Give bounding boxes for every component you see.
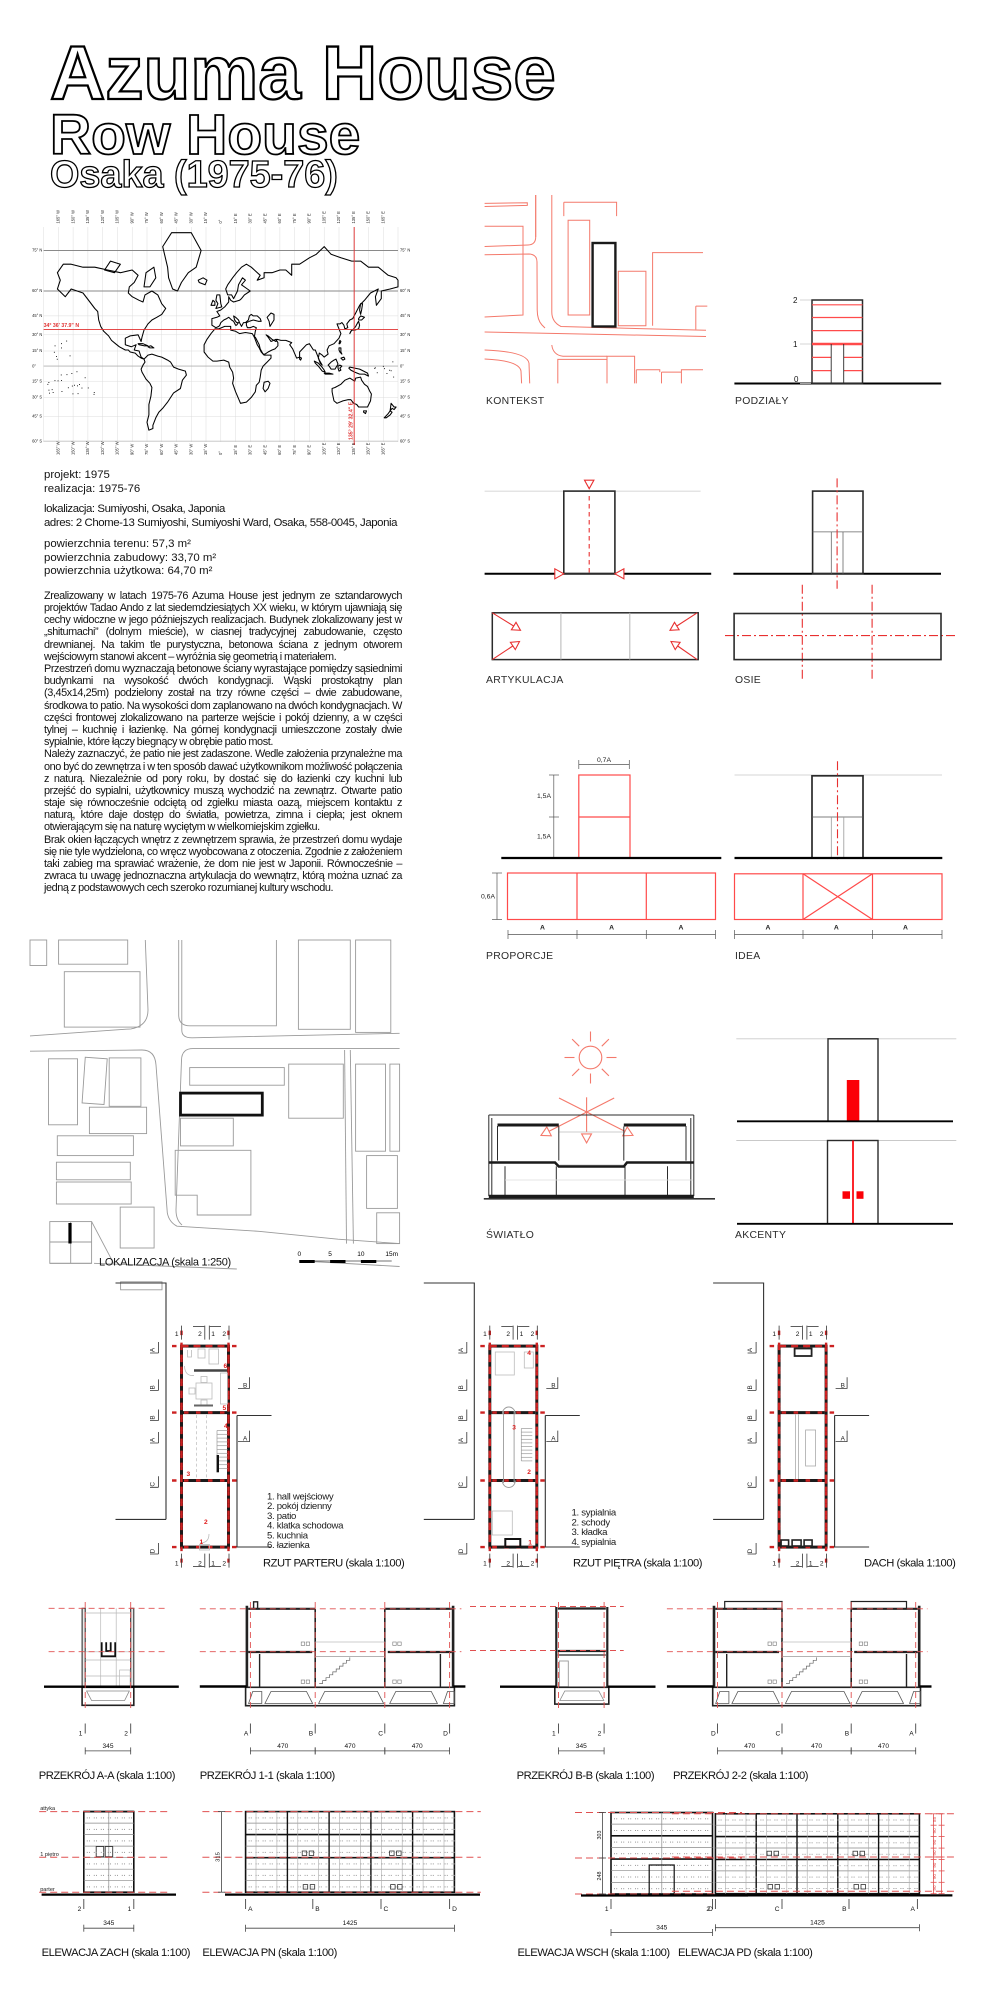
svg-text:2: 2 (222, 1331, 226, 1338)
svg-text:1: 1 (483, 1331, 487, 1338)
svg-text:165° W: 165° W (56, 441, 61, 455)
svg-text:A: A (609, 925, 614, 932)
svg-text:90: 90 (932, 1828, 937, 1834)
svg-text:135° W: 135° W (85, 441, 90, 455)
svg-text:345: 345 (102, 1743, 113, 1750)
svg-text:45° N: 45° N (400, 313, 410, 318)
svg-text:0,7A: 0,7A (597, 757, 611, 764)
svg-text:120° W: 120° W (100, 210, 105, 224)
svg-text:75° W: 75° W (144, 212, 149, 223)
svg-text:90: 90 (932, 1874, 937, 1880)
svg-text:1: 1 (175, 1331, 179, 1338)
svg-text:A: A (910, 1906, 915, 1913)
svg-text:60° E: 60° E (277, 445, 282, 455)
svg-text:B: B (747, 1415, 754, 1419)
svg-text:60° W: 60° W (159, 212, 164, 223)
svg-text:30° N: 30° N (400, 332, 410, 337)
svg-text:345: 345 (576, 1743, 587, 1750)
svg-text:60° N: 60° N (32, 288, 42, 293)
svg-text:1: 1 (528, 1540, 532, 1547)
svg-text:1: 1 (605, 1906, 609, 1913)
svg-text:10: 10 (357, 1251, 365, 1258)
svg-text:315: 315 (216, 1852, 222, 1862)
svg-text:RZUT PARTERU (skala 1:100): RZUT PARTERU (skala 1:100) (263, 1558, 405, 1570)
svg-text:0°: 0° (218, 219, 223, 223)
svg-text:PRZEKRÓJ B-B (skala 1:100): PRZEKRÓJ B-B (skala 1:100) (517, 1769, 655, 1782)
svg-text:30° W: 30° W (189, 444, 194, 455)
svg-text:75° N: 75° N (400, 248, 410, 253)
svg-text:470: 470 (744, 1743, 755, 1750)
svg-text:PRZEKRÓJ A-A (skala 1:100): PRZEKRÓJ A-A (skala 1:100) (39, 1769, 176, 1782)
svg-text:2: 2 (198, 1331, 202, 1338)
svg-text:30° E: 30° E (248, 213, 253, 223)
svg-text:105° W: 105° W (115, 441, 120, 455)
svg-text:3: 3 (512, 1425, 516, 1432)
svg-text:DACH (skala 1:100): DACH (skala 1:100) (864, 1558, 956, 1570)
svg-text:150° W: 150° W (70, 210, 75, 224)
svg-text:45° E: 45° E (262, 445, 267, 455)
svg-text:150° E: 150° E (366, 211, 371, 224)
svg-text:2: 2 (506, 1561, 510, 1568)
svg-text:1: 1 (211, 1561, 215, 1568)
svg-text:2: 2 (598, 1731, 602, 1738)
svg-text:B: B (315, 1906, 320, 1913)
svg-text:60° S: 60° S (32, 438, 42, 443)
svg-text:1: 1 (793, 340, 798, 349)
svg-text:150° E: 150° E (366, 442, 371, 455)
svg-text:135° E: 135° E (351, 211, 356, 224)
svg-text:A: A (747, 1347, 754, 1352)
svg-text:A: A (766, 925, 771, 932)
svg-text:105° W: 105° W (115, 210, 120, 224)
svg-text:470: 470 (878, 1743, 889, 1750)
svg-text:2: 2 (204, 1519, 208, 1526)
svg-text:2: 2 (820, 1331, 824, 1338)
svg-text:B: B (309, 1731, 314, 1738)
svg-text:A: A (747, 1437, 754, 1442)
svg-text:15° N: 15° N (32, 348, 42, 353)
svg-text:C: C (384, 1906, 389, 1913)
svg-text:135° 29' 32.4" E: 135° 29' 32.4" E (349, 401, 355, 440)
svg-text:34° 36' 37.9" N: 34° 36' 37.9" N (44, 323, 80, 329)
svg-text:15° W: 15° W (203, 444, 208, 455)
svg-text:D: D (443, 1731, 448, 1738)
svg-text:1425: 1425 (810, 1920, 825, 1927)
svg-text:2: 2 (531, 1561, 535, 1568)
svg-text:15° W: 15° W (203, 212, 208, 223)
svg-text:45° S: 45° S (400, 414, 410, 419)
svg-text:ELEWACJA PN (skala 1:100): ELEWACJA PN (skala 1:100) (202, 1947, 337, 1959)
svg-text:C: C (775, 1906, 780, 1913)
svg-text:6: 6 (224, 1363, 228, 1370)
svg-text:135° W: 135° W (85, 210, 90, 224)
svg-text:15° S: 15° S (32, 378, 42, 383)
svg-text:1425: 1425 (343, 1920, 358, 1927)
svg-text:1,5A: 1,5A (537, 834, 551, 841)
svg-text:4: 4 (224, 1423, 228, 1430)
svg-text:0°: 0° (218, 451, 223, 455)
svg-text:B: B (150, 1385, 157, 1389)
svg-text:120° E: 120° E (336, 442, 341, 455)
svg-text:B: B (150, 1415, 157, 1419)
svg-text:1: 1 (809, 1561, 813, 1568)
svg-text:0: 0 (794, 375, 799, 384)
svg-text:30° N: 30° N (32, 332, 42, 337)
svg-text:75° E: 75° E (292, 213, 297, 223)
svg-text:A: A (903, 925, 908, 932)
svg-text:165° W: 165° W (56, 210, 61, 224)
svg-text:1: 1 (483, 1561, 487, 1568)
svg-text:2: 2 (78, 1906, 82, 1913)
svg-text:A: A (150, 1347, 157, 1352)
svg-text:1 piętro: 1 piętro (40, 1852, 59, 1858)
svg-text:0,6A: 0,6A (481, 894, 495, 901)
svg-text:1: 1 (520, 1331, 524, 1338)
svg-text:60° S: 60° S (400, 438, 410, 443)
svg-text:1: 1 (200, 1539, 204, 1546)
svg-text:75° N: 75° N (32, 248, 42, 253)
svg-text:PRZEKRÓJ 2-2 (skala 1:100): PRZEKRÓJ 2-2 (skala 1:100) (673, 1769, 809, 1782)
svg-text:ELEWACJA PD (skala 1:100): ELEWACJA PD (skala 1:100) (678, 1947, 813, 1959)
svg-text:15° E: 15° E (233, 213, 238, 223)
svg-text:120° W: 120° W (100, 441, 105, 455)
svg-text:30° W: 30° W (189, 212, 194, 223)
svg-text:470: 470 (412, 1743, 423, 1750)
svg-text:A: A (248, 1906, 253, 1913)
svg-text:2: 2 (527, 1469, 531, 1476)
svg-text:135° E: 135° E (351, 442, 356, 455)
svg-text:1: 1 (809, 1331, 813, 1338)
svg-text:A: A (458, 1437, 465, 1442)
svg-text:5: 5 (328, 1251, 332, 1258)
svg-text:D: D (452, 1906, 457, 1913)
svg-text:B: B (842, 1906, 847, 1913)
svg-text:55: 55 (932, 1817, 937, 1823)
svg-text:75° E: 75° E (292, 445, 297, 455)
svg-text:B: B (458, 1385, 465, 1389)
svg-text:C: C (150, 1482, 157, 1487)
svg-text:345: 345 (656, 1925, 667, 1932)
svg-text:C: C (378, 1731, 383, 1738)
svg-text:attyka: attyka (40, 1806, 56, 1812)
svg-text:parter: parter (40, 1887, 55, 1893)
svg-text:303: 303 (597, 1831, 603, 1840)
svg-text:470: 470 (277, 1743, 288, 1750)
svg-text:90° W: 90° W (129, 212, 134, 223)
svg-text:90: 90 (932, 1839, 937, 1845)
svg-text:45° N: 45° N (32, 313, 42, 318)
svg-text:D: D (150, 1548, 157, 1553)
svg-text:A: A (678, 925, 683, 932)
svg-text:1: 1 (772, 1331, 776, 1338)
svg-text:75° W: 75° W (144, 444, 149, 455)
svg-text:90° W: 90° W (129, 444, 134, 455)
svg-text:A: A (834, 925, 839, 932)
svg-text:345: 345 (103, 1920, 114, 1927)
svg-text:A: A (244, 1731, 249, 1738)
svg-text:5: 5 (223, 1405, 227, 1412)
svg-text:C: C (776, 1731, 781, 1738)
svg-text:2: 2 (796, 1561, 800, 1568)
svg-text:1: 1 (79, 1731, 83, 1738)
svg-text:470: 470 (811, 1743, 822, 1750)
svg-text:A: A (150, 1437, 157, 1442)
svg-text:PRZEKRÓJ 1-1 (skala 1:100): PRZEKRÓJ 1-1 (skala 1:100) (200, 1769, 336, 1782)
svg-text:D: D (747, 1548, 754, 1553)
svg-text:C: C (458, 1482, 465, 1487)
svg-text:1: 1 (552, 1731, 556, 1738)
svg-text:RZUT PIĘTRA (skala 1:100): RZUT PIĘTRA (skala 1:100) (573, 1558, 703, 1570)
svg-text:4. sypialnia: 4. sypialnia (572, 1537, 617, 1548)
svg-text:6. łazienka: 6. łazienka (267, 1540, 311, 1551)
svg-text:120° E: 120° E (336, 211, 341, 224)
svg-text:A: A (540, 925, 545, 932)
svg-text:ELEWACJA ZACH (skala 1:100): ELEWACJA ZACH (skala 1:100) (42, 1947, 191, 1959)
svg-text:165° E: 165° E (381, 442, 386, 455)
svg-text:2: 2 (531, 1331, 535, 1338)
svg-text:90° E: 90° E (307, 213, 312, 223)
svg-text:1: 1 (520, 1561, 524, 1568)
svg-text:0°: 0° (400, 363, 404, 368)
svg-text:B: B (747, 1385, 754, 1389)
svg-text:ELEWACJA WSCH (skala 1:100): ELEWACJA WSCH (skala 1:100) (518, 1947, 671, 1959)
svg-text:B: B (458, 1415, 465, 1419)
svg-text:45° E: 45° E (262, 213, 267, 223)
svg-text:D: D (458, 1548, 465, 1553)
svg-text:3: 3 (187, 1471, 191, 1478)
svg-text:0: 0 (297, 1251, 301, 1258)
svg-text:D: D (708, 1906, 713, 1913)
svg-text:150° W: 150° W (70, 441, 75, 455)
svg-text:1,5A: 1,5A (537, 793, 551, 800)
svg-text:2: 2 (820, 1561, 824, 1568)
svg-text:15° S: 15° S (400, 378, 410, 383)
svg-text:30° S: 30° S (32, 395, 42, 400)
svg-text:165° E: 165° E (381, 211, 386, 224)
svg-text:248: 248 (597, 1872, 603, 1881)
svg-text:60° W: 60° W (159, 444, 164, 455)
svg-text:90: 90 (932, 1862, 937, 1868)
svg-text:15m: 15m (385, 1251, 398, 1258)
svg-text:45° W: 45° W (174, 212, 179, 223)
svg-text:A: A (909, 1731, 914, 1738)
svg-text:30° S: 30° S (400, 395, 410, 400)
svg-text:1: 1 (772, 1561, 776, 1568)
svg-text:2: 2 (506, 1331, 510, 1338)
svg-text:15° E: 15° E (233, 445, 238, 455)
svg-text:105° E: 105° E (321, 211, 326, 224)
svg-text:2: 2 (796, 1331, 800, 1338)
svg-text:D: D (711, 1731, 716, 1738)
svg-text:4: 4 (527, 1350, 531, 1357)
svg-text:30° E: 30° E (248, 445, 253, 455)
svg-text:1: 1 (128, 1906, 132, 1913)
svg-text:90: 90 (932, 1850, 937, 1856)
svg-text:C: C (747, 1482, 754, 1487)
svg-text:1: 1 (211, 1331, 215, 1338)
svg-text:60° E: 60° E (277, 213, 282, 223)
svg-text:B: B (845, 1731, 850, 1738)
svg-text:2: 2 (198, 1561, 202, 1568)
svg-text:LOKALIZACJA (skala 1:250): LOKALIZACJA (skala 1:250) (99, 1257, 231, 1269)
svg-text:45° S: 45° S (32, 414, 42, 419)
svg-text:60° N: 60° N (400, 288, 410, 293)
svg-text:90° E: 90° E (307, 445, 312, 455)
svg-text:90: 90 (932, 1885, 937, 1891)
svg-text:15° N: 15° N (400, 348, 410, 353)
svg-text:0°: 0° (32, 363, 36, 368)
svg-text:105° E: 105° E (321, 442, 326, 455)
svg-text:2: 2 (124, 1731, 128, 1738)
svg-text:2: 2 (222, 1561, 226, 1568)
svg-text:45° W: 45° W (174, 444, 179, 455)
svg-text:A: A (458, 1347, 465, 1352)
svg-text:2: 2 (793, 296, 798, 305)
svg-text:470: 470 (344, 1743, 355, 1750)
svg-text:1: 1 (175, 1561, 179, 1568)
